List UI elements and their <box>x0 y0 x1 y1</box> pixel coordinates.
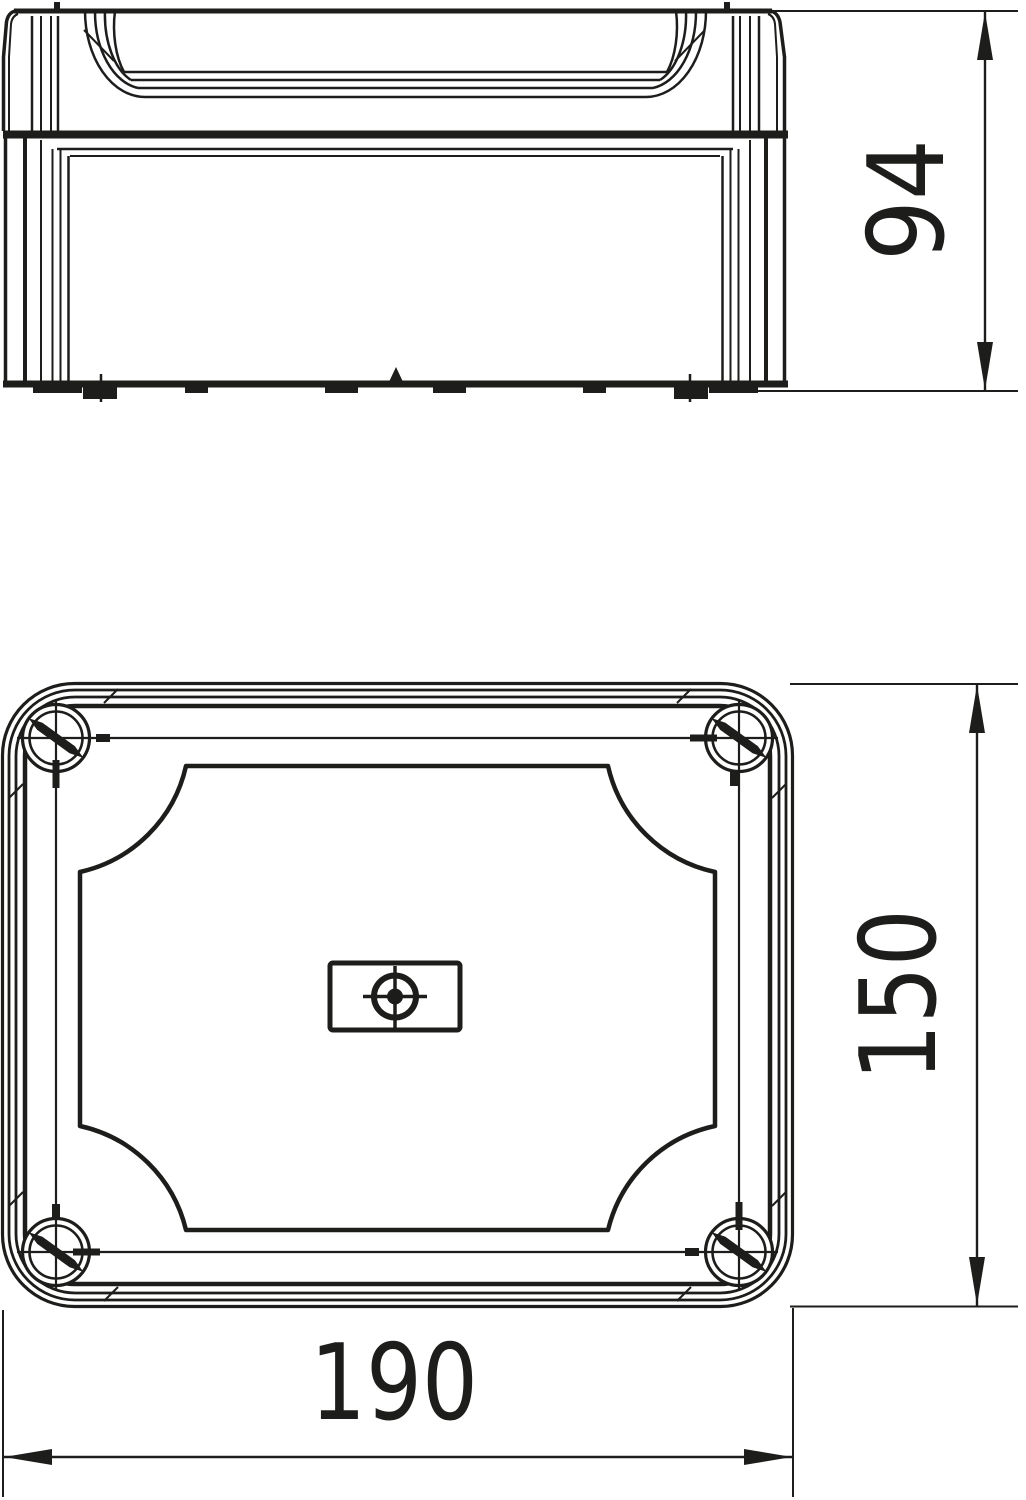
enclosure-body <box>3 138 788 388</box>
parting-line <box>3 131 788 139</box>
dimension-height-94: 94 <box>758 11 1018 391</box>
dim-label-width: 190 <box>310 1322 478 1444</box>
lid-stop-tick-left <box>54 2 60 11</box>
dim-label-height: 94 <box>846 139 968 261</box>
lid-stop-tick-right <box>724 2 730 11</box>
arrowhead-down <box>969 1257 985 1305</box>
arrowhead-up <box>969 685 985 733</box>
center-notch-triangle <box>388 367 404 384</box>
arrowhead-right <box>744 1449 792 1465</box>
arrowhead-up <box>977 12 993 60</box>
dim-label-depth: 150 <box>838 909 960 1081</box>
top-view <box>3 684 793 1307</box>
arrowhead-left <box>4 1449 52 1465</box>
drawing-sheet: 94 150 190 <box>0 0 1026 1500</box>
lid-recess <box>84 11 706 97</box>
center-marker <box>330 963 460 1030</box>
dimension-width-190: 190 <box>3 1308 793 1497</box>
technical-drawing: 94 150 190 <box>0 0 1026 1500</box>
arrowhead-down <box>977 342 993 390</box>
front-view <box>3 2 788 402</box>
dimension-depth-150: 150 <box>790 684 1018 1307</box>
